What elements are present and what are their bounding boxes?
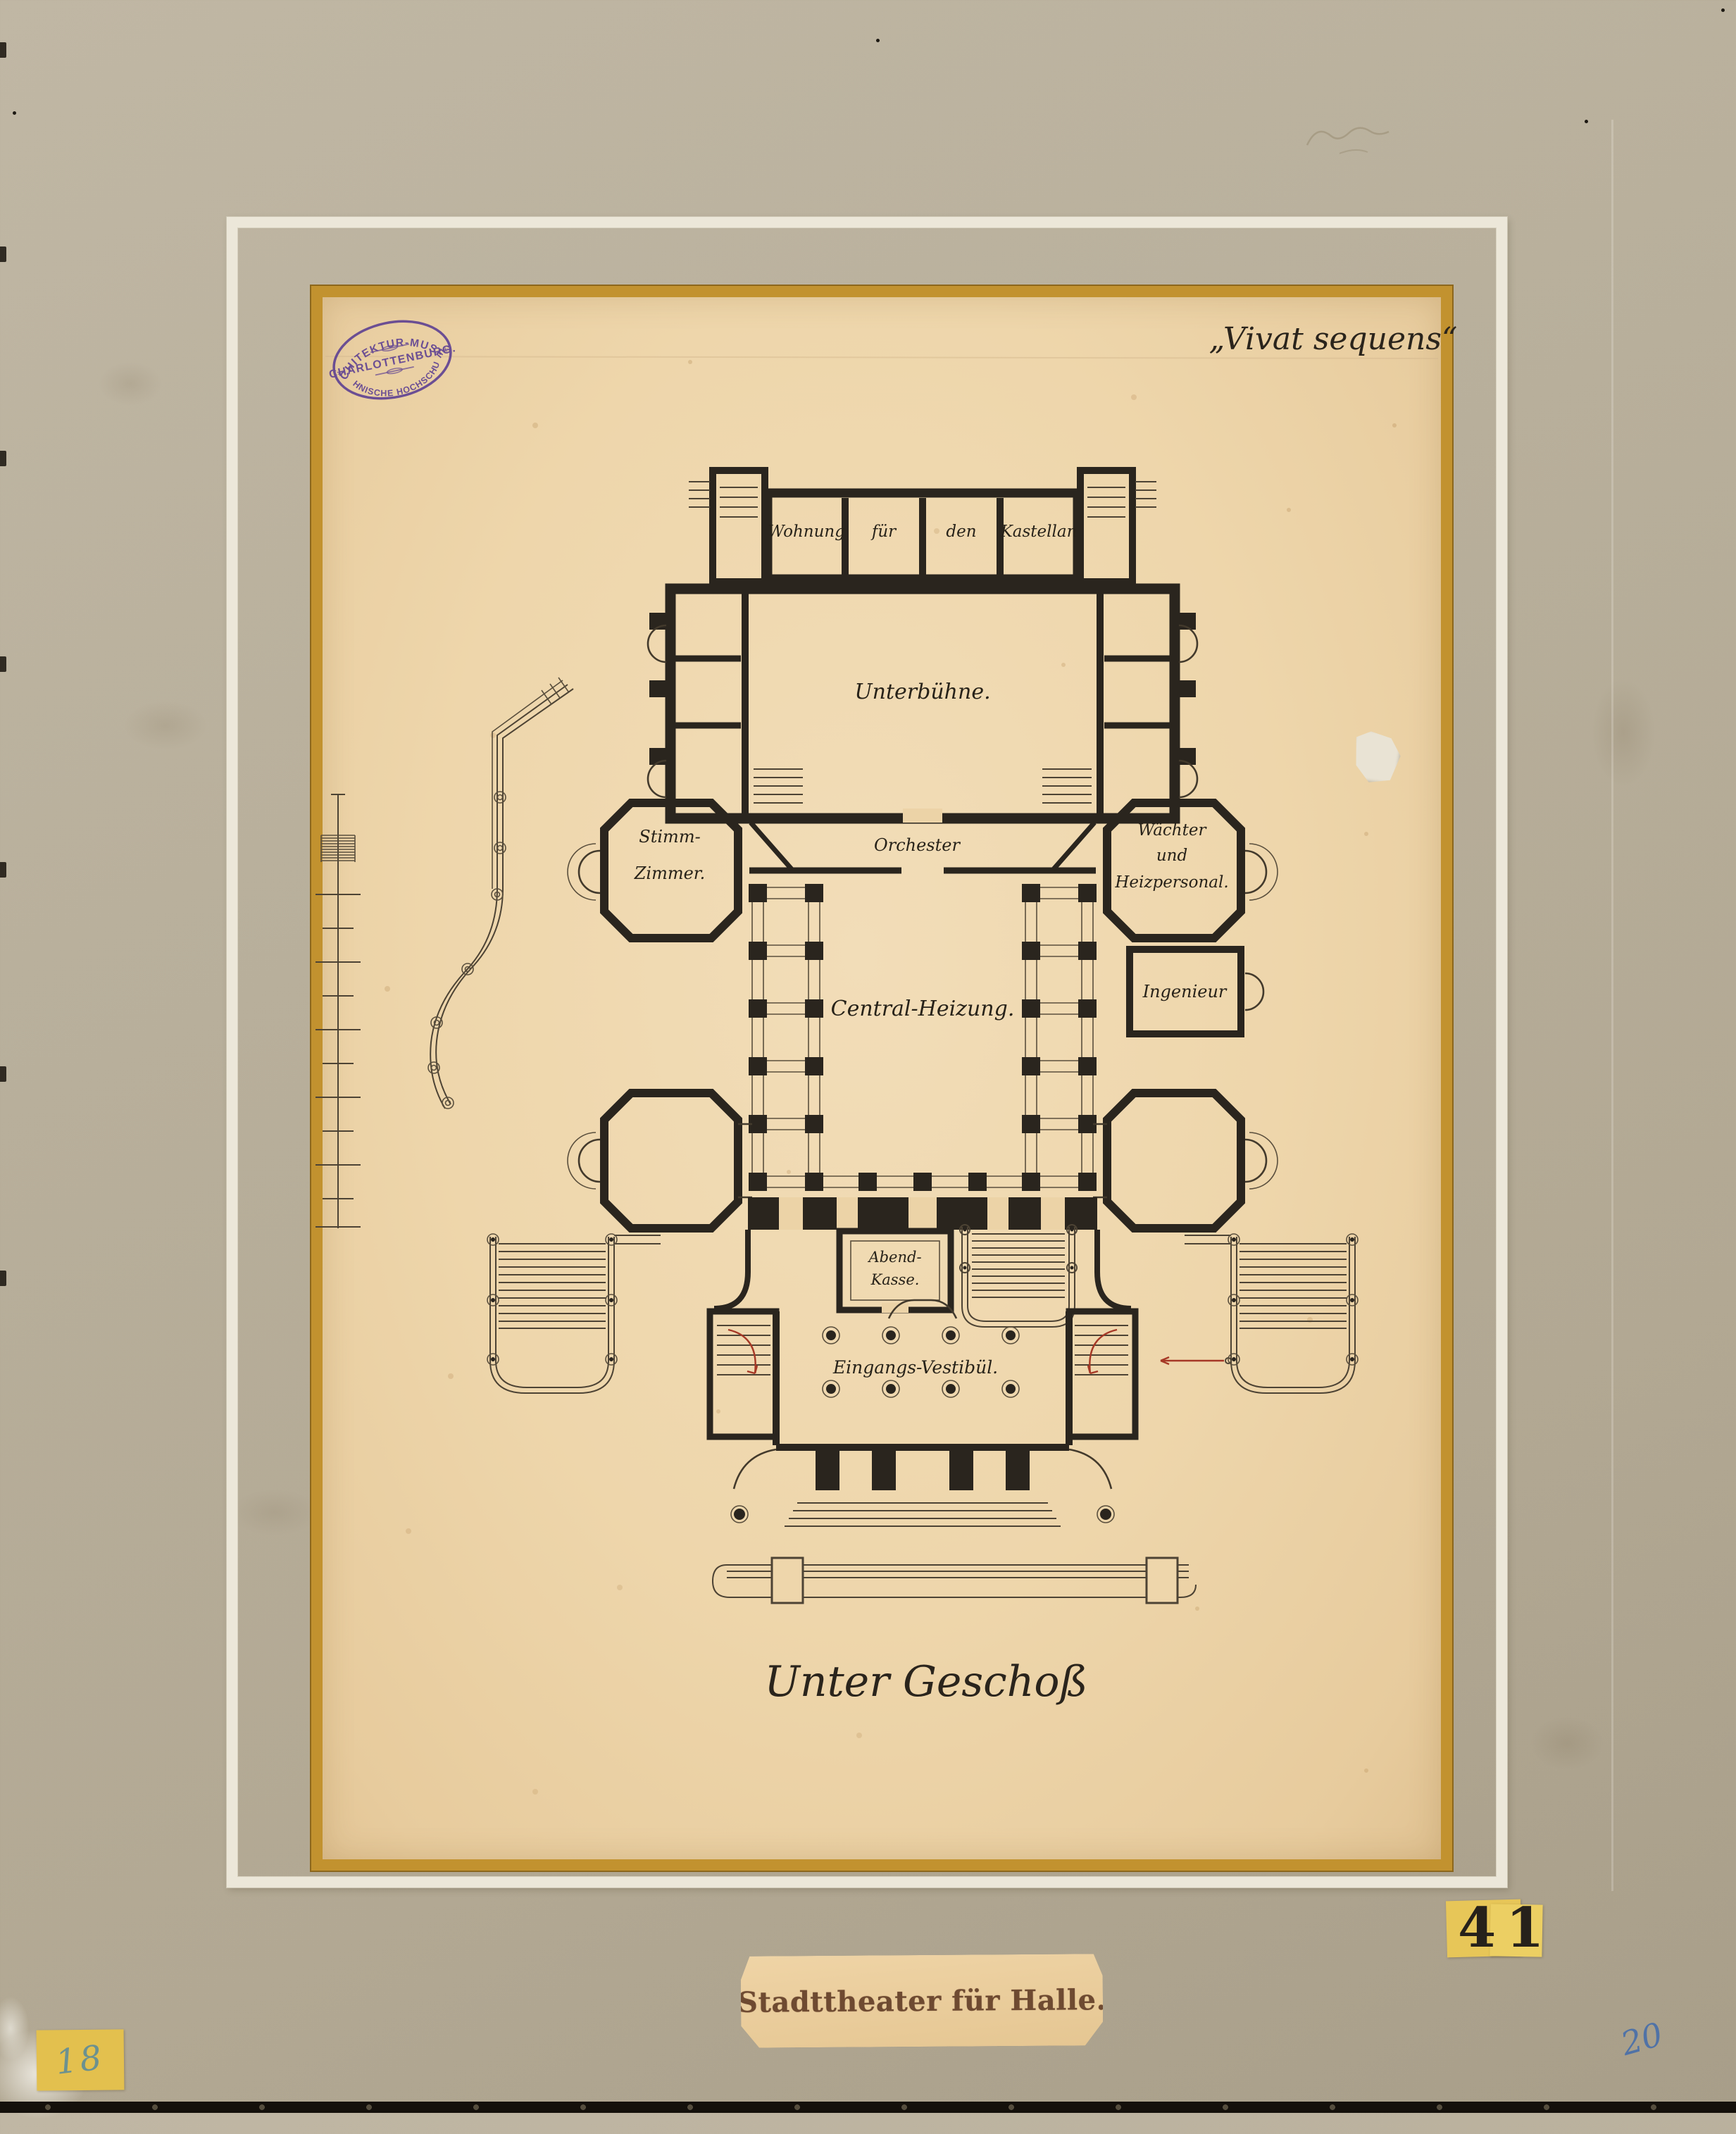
- scale-bar: [316, 794, 361, 1228]
- red-direction-arrow: [1161, 1357, 1231, 1364]
- curved-fence: [428, 678, 573, 1109]
- dust-speck: [1721, 8, 1725, 12]
- plan-pavilion-lower-right: [1093, 1093, 1278, 1228]
- motto-vivat-sequens: „Vivat sequens“: [1209, 321, 1458, 357]
- plan-stage-block: [648, 589, 1197, 823]
- plan-exterior-stair-right: [1185, 1234, 1358, 1393]
- room-label-wohnung: Wohnung: [768, 523, 845, 541]
- room-label-stimmzimmer-1: Stimm-: [639, 827, 700, 847]
- floor-plan: Wohnung für den Kastellan Unterbühne. St…: [487, 470, 1358, 1526]
- scan-edge-mark: [0, 1066, 6, 1082]
- room-label-ingenieur: Ingenieur: [1142, 982, 1228, 1002]
- inventory-number: 41: [1458, 1896, 1554, 1960]
- scan-edge-mark: [0, 451, 6, 466]
- plan-annex: [689, 470, 1156, 582]
- title-label: Stadttheater für Halle.: [741, 1954, 1104, 2048]
- room-label-stimmzimmer-2: Zimmer.: [634, 863, 706, 883]
- scan-edge-mark: [0, 1271, 6, 1286]
- plan-side-stair-right: [1069, 1311, 1135, 1437]
- scan-edge-mark: [0, 656, 6, 672]
- railing-detail: [713, 1558, 1196, 1603]
- title-text: Stadttheater für Halle.: [737, 1983, 1106, 2019]
- room-label-orchester: Orchester: [874, 835, 961, 855]
- room-label-central-heizung: Central-Heizung.: [831, 997, 1015, 1021]
- plan-portico: [731, 1444, 1114, 1526]
- corner-label-18: 18: [37, 2029, 125, 2090]
- dust-speck: [1585, 120, 1588, 123]
- room-label-unterbuehne: Unterbühne.: [854, 680, 990, 704]
- plan-front-band: [748, 1197, 1097, 1230]
- mat-crease: [1611, 120, 1613, 1891]
- plan-exterior-stair-left: [487, 1234, 661, 1393]
- room-label-kastellan: Kastellan: [1000, 523, 1078, 541]
- room-label-waechter-1: Wächter: [1138, 821, 1208, 840]
- corner-number: 18: [54, 2038, 106, 2083]
- room-label-fuer: für: [870, 523, 897, 541]
- room-label-vestibuel: Eingangs-Vestibül.: [832, 1357, 998, 1378]
- scan-edge-mark: [0, 247, 6, 262]
- plan-grand-stair: [960, 1225, 1077, 1327]
- foundation-piers: [749, 884, 1097, 1191]
- scan-edge-mark: [0, 42, 6, 58]
- plan-linework: ARCHITEKTUR-MUSEUM CHARLOTTENBURG. TECHN…: [0, 0, 1736, 2113]
- room-label-den: den: [946, 523, 976, 541]
- dust-speck: [13, 111, 16, 115]
- museum-stamp: ARCHITEKTUR-MUSEUM CHARLOTTENBURG. TECHN…: [321, 310, 463, 411]
- room-label-abendkasse-2: Kasse.: [870, 1271, 920, 1288]
- caption-unter-geschoss: Unter Geschoß: [764, 1657, 1087, 1706]
- plan-central-hall: [749, 884, 1097, 1191]
- plan-side-stair-left: [710, 1311, 776, 1437]
- dust-speck: [876, 39, 880, 42]
- pencil-scribble: [1307, 128, 1389, 154]
- inventory-label-41: 41: [1447, 1896, 1552, 1964]
- room-label-waechter-3: Heizpersonal.: [1114, 873, 1228, 892]
- corridor-corner-left: [714, 1230, 748, 1309]
- scan-edge-mark: [0, 862, 6, 878]
- room-label-waechter-2: und: [1156, 847, 1187, 865]
- scanned-drawing-page: { "artwork": { "motto": "„Vivat sequens“…: [0, 0, 1736, 2113]
- plan-pavilion-lower-left: [568, 1093, 752, 1228]
- corridor-corner-right: [1097, 1230, 1131, 1309]
- room-label-abendkasse-1: Abend-: [867, 1249, 921, 1266]
- scan-bed-strip: [0, 2102, 1736, 2113]
